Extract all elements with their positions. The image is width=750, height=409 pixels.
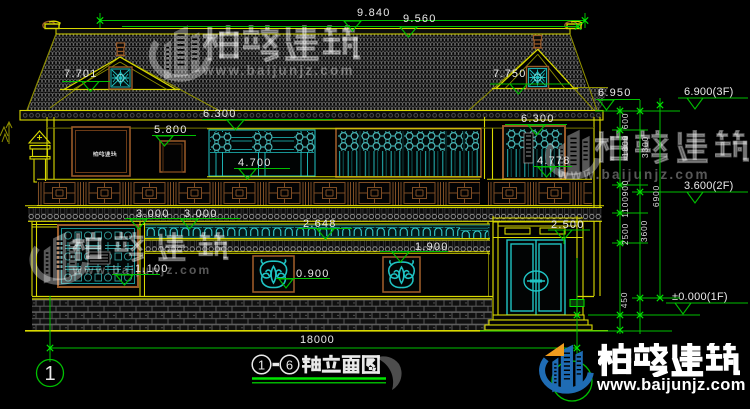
svg-text:2.500: 2.500 — [551, 219, 585, 231]
svg-text:6.900(3F): 6.900(3F) — [684, 86, 734, 98]
svg-text:6.300: 6.300 — [521, 113, 555, 125]
svg-text:6.950: 6.950 — [598, 87, 632, 99]
svg-text:7.701: 7.701 — [64, 68, 98, 80]
svg-text:1800: 1800 — [620, 135, 630, 157]
svg-text:±0.000(1F): ±0.000(1F) — [672, 291, 728, 303]
svg-text:www.baijunjz.com: www.baijunjz.com — [202, 63, 355, 78]
svg-text:5.800: 5.800 — [154, 124, 188, 136]
svg-text:3300: 3300 — [640, 136, 650, 158]
svg-text:450: 450 — [619, 292, 629, 309]
svg-text:4.778: 4.778 — [537, 155, 571, 167]
svg-text:18000: 18000 — [300, 334, 335, 346]
svg-text:600: 600 — [620, 113, 630, 130]
svg-text:7.750: 7.750 — [493, 68, 527, 80]
svg-text:6900: 6900 — [651, 185, 661, 207]
svg-text:2500: 2500 — [620, 223, 630, 245]
svg-text:1.100: 1.100 — [135, 263, 169, 275]
svg-text:1: 1 — [44, 363, 55, 385]
svg-text:3.600(2F): 3.600(2F) — [684, 180, 734, 192]
svg-text:6.300: 6.300 — [203, 108, 237, 120]
svg-text:www.baijunjz.com: www.baijunjz.com — [596, 376, 746, 394]
svg-text:9.840: 9.840 — [357, 7, 391, 19]
svg-text:9.560: 9.560 — [403, 13, 437, 25]
svg-text:6: 6 — [286, 358, 293, 373]
svg-text:3600: 3600 — [639, 220, 649, 242]
svg-text:900: 900 — [620, 180, 630, 197]
svg-text:4.700: 4.700 — [238, 157, 272, 169]
svg-text:1: 1 — [258, 358, 265, 373]
svg-text:1100: 1100 — [620, 196, 630, 217]
